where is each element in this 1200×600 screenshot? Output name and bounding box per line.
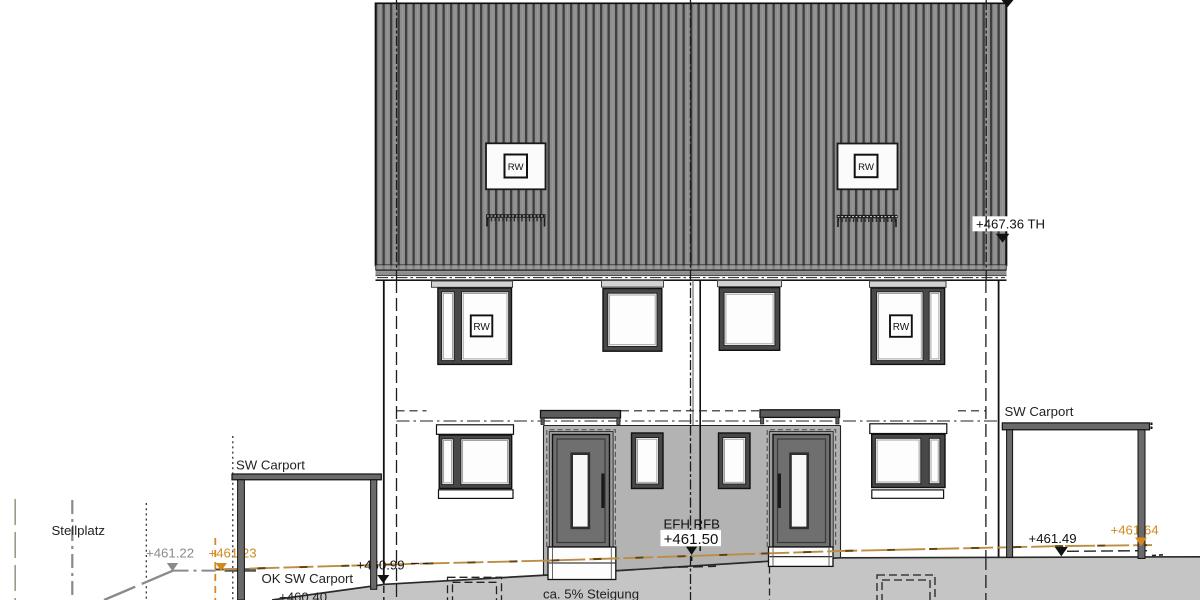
svg-text:Stellplatz: Stellplatz [52, 523, 106, 538]
svg-text:+461.23: +461.23 [209, 546, 257, 561]
svg-text:SW Carport: SW Carport [1005, 404, 1074, 419]
svg-text:OK SW Carport: OK SW Carport [262, 571, 354, 586]
svg-text:+461.49: +461.49 [1029, 531, 1077, 546]
svg-text:+460.40: +460.40 [279, 590, 327, 600]
svg-text:RW: RW [508, 162, 525, 173]
svg-text:SW Carport: SW Carport [236, 458, 305, 473]
svg-text:+461.50: +461.50 [664, 531, 719, 548]
svg-text:+460.99: +460.99 [357, 558, 405, 573]
svg-text:+461.22: +461.22 [146, 546, 194, 561]
svg-text:RW: RW [473, 322, 490, 333]
svg-text:+461.64: +461.64 [1111, 523, 1159, 538]
svg-text:EFH RFB: EFH RFB [664, 516, 721, 531]
svg-text:RW: RW [858, 162, 875, 173]
svg-text:RW: RW [893, 322, 910, 333]
svg-text:ca. 5% Steigung: ca. 5% Steigung [543, 587, 639, 600]
